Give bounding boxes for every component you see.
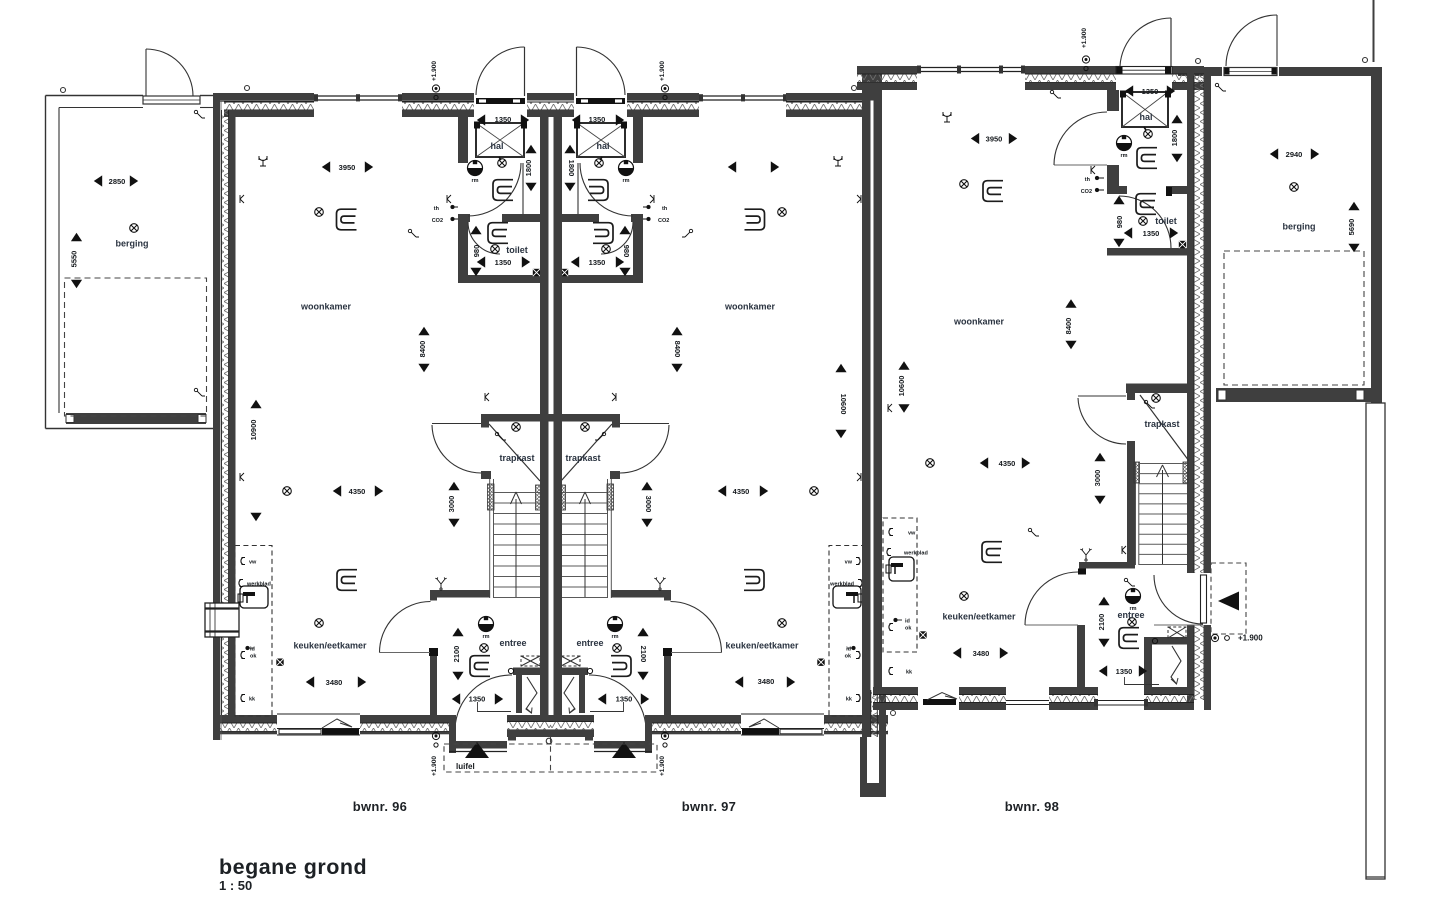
svg-text:10600: 10600: [897, 376, 906, 397]
svg-text:3000: 3000: [644, 496, 653, 513]
svg-text:ok: ok: [845, 654, 852, 660]
svg-text:woonkamer: woonkamer: [724, 302, 776, 312]
svg-text:1350: 1350: [1143, 229, 1160, 238]
svg-text:entree: entree: [499, 638, 526, 648]
svg-text:entree: entree: [576, 638, 603, 648]
svg-text:CO2: CO2: [432, 218, 443, 224]
svg-text:rm: rm: [611, 634, 618, 640]
svg-text:kk: kk: [249, 697, 256, 703]
svg-text:kk: kk: [846, 697, 853, 703]
svg-text:1350: 1350: [1142, 87, 1159, 96]
svg-text:toilet: toilet: [1155, 216, 1177, 226]
svg-text:keuken/eetkamer: keuken/eetkamer: [725, 641, 799, 651]
svg-text:bwnr. 98: bwnr. 98: [1005, 799, 1059, 814]
svg-text:rm: rm: [1129, 606, 1136, 612]
svg-text:vw: vw: [249, 560, 257, 566]
svg-text:8400: 8400: [673, 341, 682, 358]
svg-text:berging: berging: [116, 239, 149, 249]
svg-text:10900: 10900: [249, 420, 258, 441]
svg-text:rm: rm: [471, 178, 478, 184]
svg-text:toilet: toilet: [506, 245, 528, 255]
svg-text:+1.900: +1.900: [659, 61, 666, 81]
svg-text:bwnr. 96: bwnr. 96: [353, 799, 407, 814]
svg-text:1350: 1350: [469, 695, 486, 704]
svg-text:woonkamer: woonkamer: [300, 302, 352, 312]
svg-text:ok: ok: [250, 654, 257, 660]
svg-text:3950: 3950: [986, 135, 1003, 144]
svg-text:2100: 2100: [1097, 614, 1106, 631]
svg-text:kk: kk: [906, 670, 913, 676]
svg-text:th: th: [434, 206, 440, 212]
svg-text:+1.900: +1.900: [1238, 634, 1263, 643]
svg-text:trapkast: trapkast: [499, 453, 534, 463]
svg-text:5690: 5690: [1347, 219, 1356, 236]
svg-text:luifel: luifel: [456, 762, 475, 771]
svg-text:werkblad: werkblad: [829, 582, 854, 588]
svg-text:3000: 3000: [447, 496, 456, 513]
svg-text:980: 980: [1115, 216, 1124, 229]
svg-text:+1.900: +1.900: [659, 756, 666, 776]
svg-text:1350: 1350: [616, 695, 633, 704]
svg-text:keuken/eetkamer: keuken/eetkamer: [942, 612, 1016, 622]
svg-text:vw: vw: [845, 560, 853, 566]
svg-text:8400: 8400: [418, 341, 427, 358]
svg-text:+1.900: +1.900: [431, 756, 438, 776]
svg-text:3480: 3480: [326, 678, 343, 687]
svg-text:rm: rm: [1120, 153, 1127, 159]
svg-text:CO2: CO2: [1081, 189, 1092, 195]
svg-text:1350: 1350: [1116, 667, 1133, 676]
svg-text:rm: rm: [482, 634, 489, 640]
svg-text:begane grond: begane grond: [219, 855, 367, 879]
svg-text:hal: hal: [490, 141, 503, 151]
svg-text:3950: 3950: [339, 163, 356, 172]
svg-text:werkblad: werkblad: [246, 582, 271, 588]
svg-text:trapkast: trapkast: [1144, 419, 1179, 429]
svg-text:woonkamer: woonkamer: [953, 317, 1005, 327]
svg-text:trapkast: trapkast: [565, 453, 600, 463]
svg-text:1800: 1800: [524, 160, 533, 177]
svg-text:1350: 1350: [495, 115, 512, 124]
svg-text:1 : 50: 1 : 50: [219, 878, 252, 893]
svg-text:id: id: [250, 647, 255, 653]
svg-text:1350: 1350: [589, 258, 606, 267]
svg-text:980: 980: [472, 245, 481, 258]
svg-text:2100: 2100: [452, 646, 461, 663]
svg-text:+1.900: +1.900: [431, 61, 438, 81]
svg-text:vw: vw: [908, 531, 916, 537]
svg-text:id: id: [846, 647, 851, 653]
svg-text:bwnr. 97: bwnr. 97: [682, 799, 736, 814]
svg-text:4350: 4350: [349, 487, 366, 496]
svg-text:5550: 5550: [70, 251, 79, 268]
svg-text:4350: 4350: [999, 459, 1016, 468]
svg-text:2100: 2100: [639, 646, 648, 663]
svg-text:berging: berging: [1283, 222, 1316, 232]
svg-text:CO2: CO2: [658, 218, 669, 224]
svg-text:1800: 1800: [1170, 130, 1179, 147]
svg-text:+1.900: +1.900: [1081, 28, 1088, 48]
svg-text:8400: 8400: [1064, 318, 1073, 335]
svg-text:3480: 3480: [973, 649, 990, 658]
svg-text:werkblad: werkblad: [903, 551, 928, 557]
svg-text:1800: 1800: [567, 160, 576, 177]
svg-text:rm: rm: [622, 178, 629, 184]
svg-text:keuken/eetkamer: keuken/eetkamer: [293, 641, 367, 651]
svg-text:ok: ok: [905, 626, 912, 632]
svg-text:hal: hal: [1139, 112, 1152, 122]
svg-text:id: id: [905, 619, 910, 625]
svg-text:th: th: [1085, 177, 1091, 183]
svg-text:hal: hal: [596, 141, 609, 151]
svg-text:1350: 1350: [495, 258, 512, 267]
svg-text:3000: 3000: [1093, 470, 1102, 487]
svg-text:980: 980: [622, 245, 631, 258]
svg-text:2850: 2850: [109, 177, 126, 186]
svg-text:3480: 3480: [758, 677, 775, 686]
svg-text:10600: 10600: [839, 394, 848, 415]
svg-text:th: th: [662, 206, 668, 212]
svg-text:2940: 2940: [1286, 150, 1303, 159]
svg-text:1350: 1350: [589, 115, 606, 124]
svg-text:4350: 4350: [733, 487, 750, 496]
